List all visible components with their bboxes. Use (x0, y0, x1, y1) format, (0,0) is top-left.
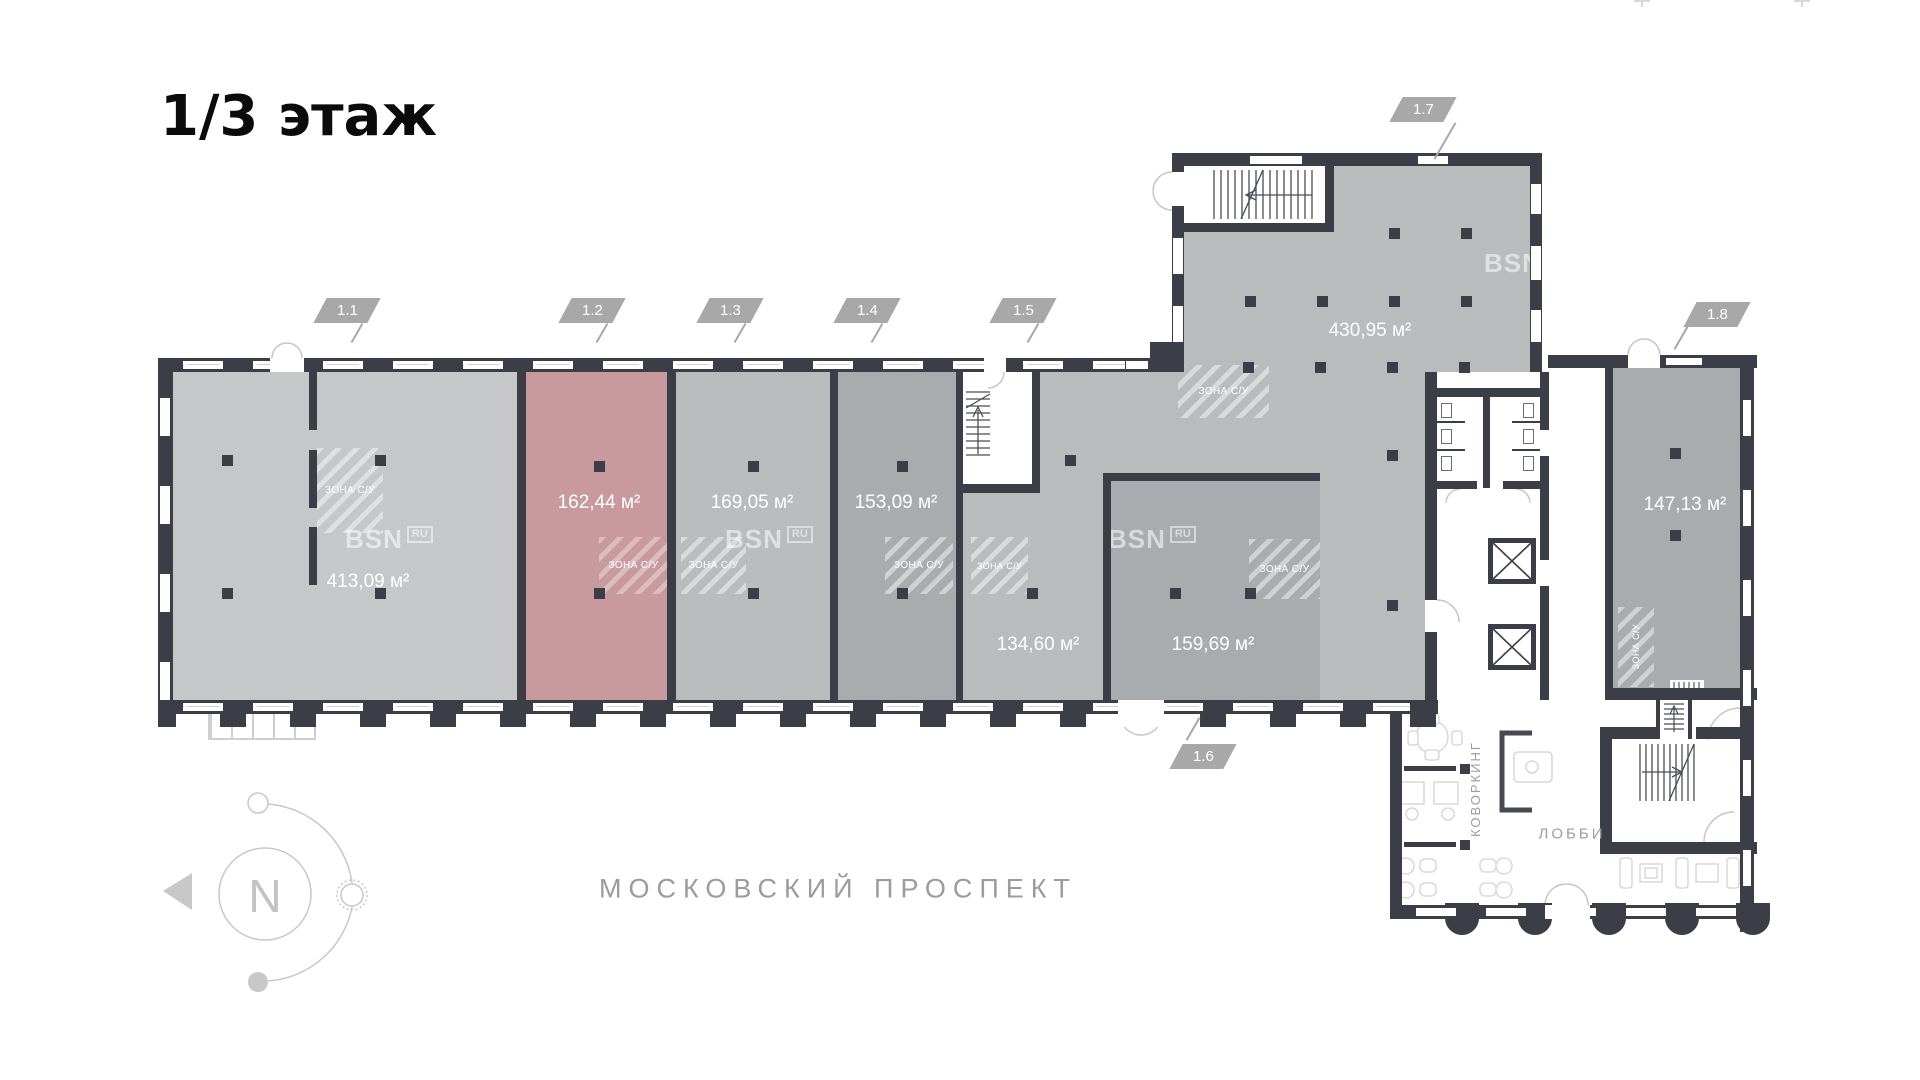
column (748, 588, 759, 599)
elevator-shaft (1488, 624, 1536, 670)
furniture-icon (1398, 714, 1739, 898)
wall (830, 372, 838, 700)
column (1387, 362, 1398, 373)
column (1315, 362, 1326, 373)
tag-leader-line (1027, 323, 1040, 343)
wall (309, 372, 317, 430)
unit-tag-1.4[interactable]: 1.4 (833, 298, 900, 323)
wall (1540, 372, 1549, 700)
window-strip (165, 361, 1125, 369)
window-glass-line (165, 364, 1125, 365)
column (897, 461, 908, 472)
tag-leader-line (351, 323, 364, 343)
column (1670, 530, 1681, 541)
column (1027, 588, 1038, 599)
column (594, 461, 605, 472)
column (222, 588, 233, 599)
compass-north-letter: N (248, 870, 281, 922)
watermark: BSNRU (1108, 526, 1196, 552)
column (1389, 228, 1400, 239)
window (1250, 156, 1302, 164)
wc-zone-label: ЗОНА С/У (1631, 624, 1641, 669)
wc-zone: ЗОНА С/У (1249, 539, 1320, 599)
column (1317, 296, 1328, 307)
door-gap (1172, 172, 1184, 206)
door-gap (270, 358, 304, 372)
elevator-shaft (1488, 538, 1536, 584)
wall (1425, 372, 1437, 700)
window (1126, 361, 1148, 369)
watermark: BSNRU (725, 526, 813, 552)
partition-screen (1404, 766, 1456, 771)
compass-icon: N (163, 793, 367, 992)
column (1065, 455, 1076, 466)
window (1173, 238, 1183, 274)
survey-mark-icon (1634, 0, 1650, 7)
unit-tag-1.5[interactable]: 1.5 (989, 298, 1056, 323)
tag-leader-line (871, 323, 884, 343)
wc-zone: ЗОНА С/У (1618, 607, 1654, 687)
wall (1605, 688, 1757, 700)
column (1461, 296, 1472, 307)
column (1461, 228, 1472, 239)
wc-zone: ЗОНА С/У (599, 537, 668, 594)
wc-zone: ЗОНА С/У (885, 537, 953, 594)
wc-zone: ЗОНА С/У (317, 448, 383, 533)
wall (1390, 700, 1402, 919)
column (897, 588, 908, 599)
column (1389, 296, 1400, 307)
window-glass-line (165, 706, 1410, 707)
toilet-icon (1523, 403, 1534, 418)
column (1245, 296, 1256, 307)
window (1531, 310, 1541, 342)
door-gap (1628, 355, 1660, 368)
wall (1103, 473, 1320, 481)
wall (1483, 388, 1490, 488)
wall (1612, 727, 1656, 739)
unit-1.4-room[interactable] (838, 372, 956, 700)
wc-zone-label: ЗОНА С/У (689, 560, 739, 571)
stall-partition (1437, 421, 1465, 423)
wall (1032, 372, 1040, 484)
wall (517, 358, 526, 714)
window (1531, 184, 1541, 214)
wall (1437, 481, 1477, 489)
unit-area-label: 413,09 м² (327, 571, 410, 593)
wc-zone-label: ЗОНА С/У (609, 560, 659, 571)
wall (1605, 368, 1613, 694)
unit-area-label: 159,69 м² (1172, 634, 1255, 656)
toilet-icon (1523, 429, 1534, 444)
wall (963, 484, 1040, 493)
stairwell-room (963, 372, 1032, 484)
wall-stub (1460, 840, 1470, 850)
pilaster-row (158, 714, 1438, 727)
door-gap (1425, 600, 1437, 632)
stall-partition (1512, 449, 1540, 451)
wall (1600, 842, 1757, 854)
unit-area-label: 430,95 м² (1329, 320, 1412, 342)
reception-desk-icon (1502, 733, 1532, 810)
unit-area-label: 153,09 м² (855, 492, 938, 514)
street-label: МОСКОВСКИЙ ПРОСПЕКТ (599, 874, 1077, 905)
column (1387, 600, 1398, 611)
wall (1688, 700, 1692, 739)
door-gap (1540, 560, 1549, 586)
partition-screen (1404, 842, 1456, 847)
toilet-icon (1523, 456, 1534, 471)
wc-zone-label: ЗОНА С/У (894, 560, 944, 571)
wall (1184, 223, 1334, 232)
lobby-label: ЛОББИ (1539, 826, 1606, 843)
toilet-icon (1441, 429, 1452, 444)
wc-zone-label: ЗОНА С/У (325, 485, 375, 496)
watermark: BSNRU (345, 526, 433, 552)
window-strip (160, 372, 170, 702)
column (1459, 362, 1470, 373)
door-gap (984, 358, 1006, 372)
column (1243, 362, 1254, 373)
tag-leader-line (1674, 326, 1689, 350)
watermark: BSNRU (1484, 250, 1572, 276)
unit-area-label: 162,44 м² (558, 492, 641, 514)
wall (667, 358, 676, 714)
wall (309, 527, 317, 585)
window-strip (1743, 370, 1751, 900)
page-title: 1/3 этаж (160, 84, 437, 149)
floor-plan-canvas: 1/3 этаж МОСКОВСКИЙ ПРОСПЕКТ ЗОНА С/У ЗО… (0, 0, 1920, 1080)
window (1531, 246, 1541, 280)
unit-area-label: 134,60 м² (997, 634, 1080, 656)
door-gap (1540, 430, 1549, 456)
wc-zone: ЗОНА С/У (1178, 365, 1269, 418)
unit-tag-1.2[interactable]: 1.2 (558, 298, 625, 323)
wall (1150, 342, 1184, 372)
unit-tag-1.1[interactable]: 1.1 (313, 298, 380, 323)
window-strip (165, 703, 1410, 711)
unit-tag-1.6[interactable]: 1.6 (1169, 744, 1236, 769)
wc-zone-label: ЗОНА С/У (1260, 564, 1310, 575)
wc-zone-label: ЗОНА С/У (1199, 386, 1249, 397)
unit-tag-1.8[interactable]: 1.8 (1683, 302, 1750, 327)
stall-partition (1512, 421, 1540, 423)
wall (1656, 700, 1660, 739)
tag-leader-line (734, 323, 747, 343)
stairs-icon (1664, 704, 1684, 732)
wall (1172, 153, 1542, 166)
window (1173, 306, 1183, 342)
wall (1696, 727, 1745, 739)
door-gap (1118, 700, 1164, 727)
stairs-icon (1640, 744, 1694, 801)
wc-zone: ЗОНА С/У (971, 537, 1028, 594)
door-gap (1545, 905, 1590, 919)
stairwell-room (1184, 166, 1325, 223)
wall (1103, 473, 1111, 700)
column (594, 588, 605, 599)
survey-mark-icon (1794, 0, 1810, 7)
column (222, 455, 233, 466)
wall (309, 450, 317, 508)
coworking-label: КОВОРКИНГ (1468, 733, 1483, 837)
wall (956, 372, 963, 700)
toilet-icon (1441, 456, 1452, 471)
column (375, 455, 386, 466)
column (1245, 588, 1256, 599)
tag-leader-line (596, 323, 609, 343)
column (1670, 448, 1681, 459)
wc-zone-label: ЗОНА С/У (977, 561, 1022, 571)
wall (1503, 481, 1540, 489)
unit-1.2-room-selected[interactable] (526, 372, 667, 700)
unit-tag-1.7[interactable]: 1.7 (1389, 97, 1456, 122)
column (748, 461, 759, 472)
column (1387, 450, 1398, 461)
unit-tag-1.3[interactable]: 1.3 (696, 298, 763, 323)
column (1170, 588, 1181, 599)
window (1666, 358, 1702, 365)
unit-area-label: 147,13 м² (1644, 494, 1727, 516)
unit-area-label: 169,05 м² (711, 492, 794, 514)
toilet-icon (1441, 403, 1452, 418)
round-column (1736, 903, 1770, 935)
stall-partition (1437, 449, 1465, 451)
